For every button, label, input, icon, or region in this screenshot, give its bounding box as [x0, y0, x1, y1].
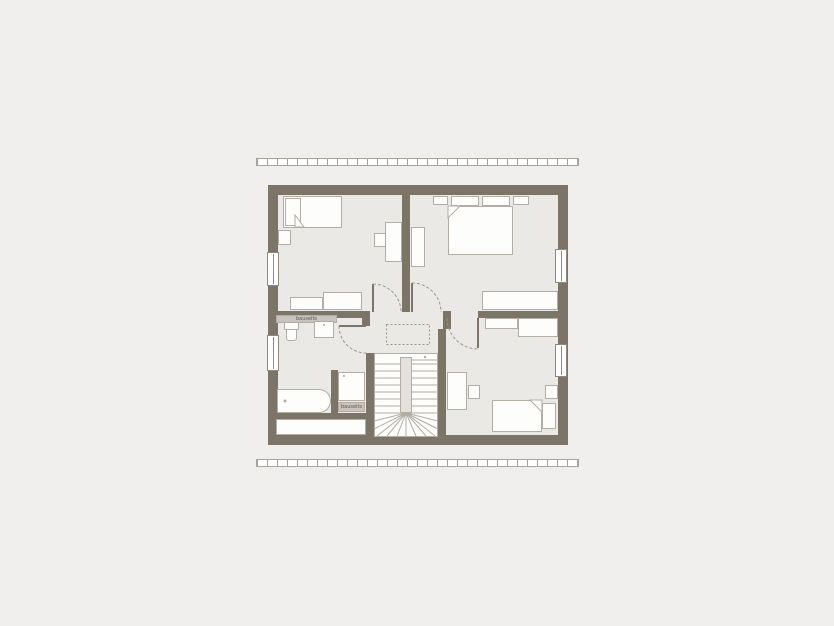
window-right-upper: [555, 249, 567, 283]
knee-wall-storage: [276, 419, 366, 435]
roof-edge-hatch-top: [256, 158, 579, 166]
nightstand-top-left: [278, 230, 291, 245]
wall-stair-right: [438, 329, 446, 445]
dresser-bottom-right-tall: [518, 318, 558, 337]
chair-top-left: [374, 233, 386, 247]
pillow-double-bed-1: [451, 196, 479, 206]
shower: [338, 372, 365, 401]
dresser-bottom-right-low: [485, 318, 518, 329]
nightstand-top-right-west: [433, 196, 448, 205]
wall-bedroom-divider: [402, 195, 410, 312]
desk-top-left: [385, 222, 402, 262]
page-background: { "canvas": { "width": 834, "height": 62…: [0, 0, 834, 626]
wardrobe-top-right: [411, 227, 425, 267]
single-bed-bottom-right: [492, 400, 542, 432]
pillow-bottom-right-bed: [542, 403, 556, 429]
pillow-double-bed-2: [482, 196, 510, 206]
shower-shelf-label: bauseits: [341, 405, 362, 410]
shower-shelf: bauseits: [338, 402, 365, 412]
window-right-lower: [555, 344, 567, 377]
wall-bathroom-door-stub: [362, 311, 370, 326]
wall-bedroom-br-stub: [443, 311, 451, 329]
pillow-top-left-bed: [285, 198, 301, 226]
chair-bottom-right: [468, 385, 480, 399]
window-left-lower: [267, 335, 279, 371]
wall-stair-left: [366, 353, 374, 445]
double-bed-top-right: [448, 206, 513, 255]
wall-bathroom-right: [331, 370, 338, 419]
sink: [314, 321, 334, 338]
dresser-top-left-low: [290, 297, 323, 310]
floor-plan: bauseits bauseits: [0, 0, 834, 626]
dresser-top-left-tall: [323, 292, 362, 310]
nightstand-bottom-right: [545, 385, 558, 399]
window-left-upper: [267, 252, 279, 286]
wall-bedroom-br-top: [478, 311, 558, 318]
nightstand-top-right-east: [513, 196, 529, 205]
sideboard-top-right: [482, 291, 558, 310]
desk-bottom-right: [447, 372, 467, 410]
toilet-bowl: [286, 329, 297, 341]
roof-edge-hatch-bottom: [256, 459, 579, 467]
bathtub: [277, 389, 331, 413]
